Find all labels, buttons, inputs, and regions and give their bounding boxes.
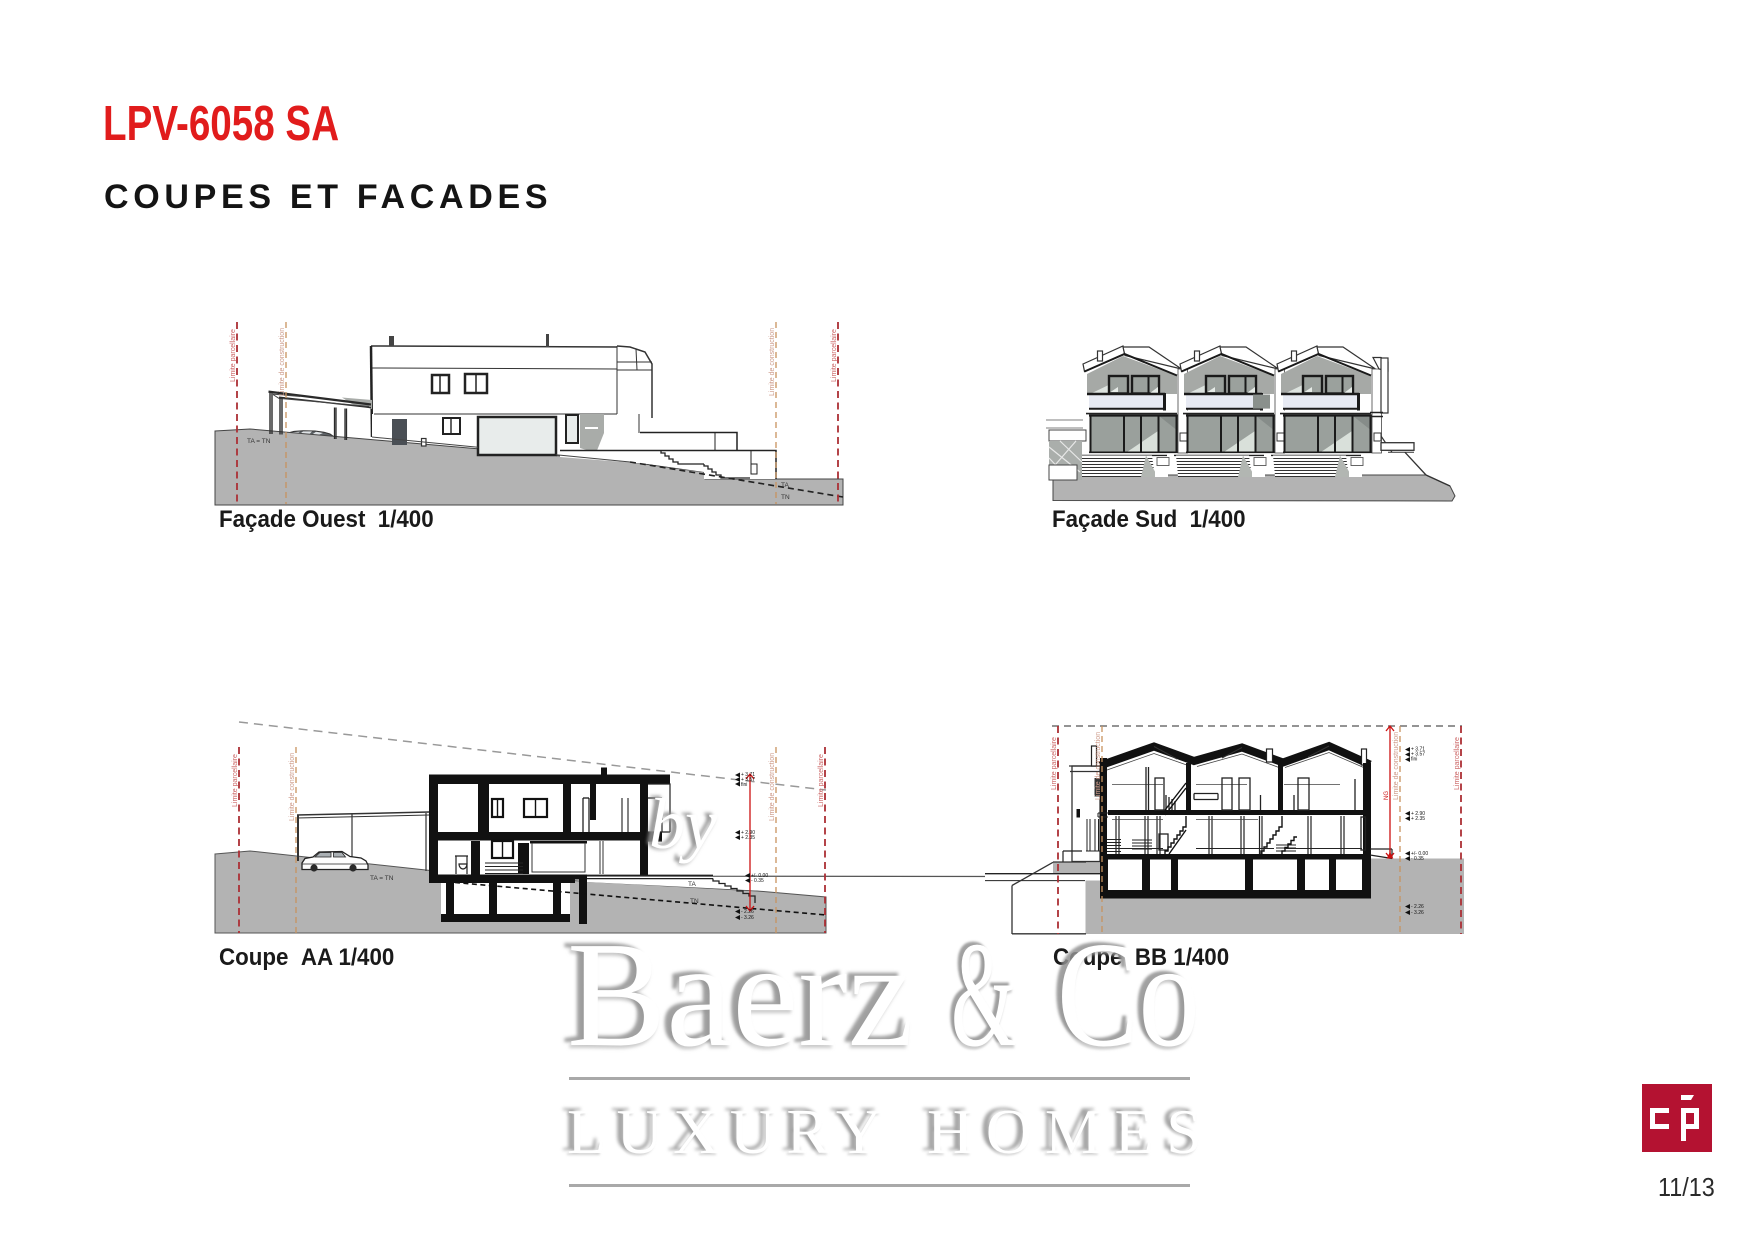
svg-text:- 0.35: - 0.35 [1411, 856, 1424, 862]
svg-text:Limite de construction: Limite de construction [1393, 732, 1400, 800]
svg-text:Limite parcellaire: Limite parcellaire [1454, 737, 1461, 790]
svg-text:TA = TN: TA = TN [370, 875, 394, 882]
svg-text:Limite de construction: Limite de construction [769, 328, 776, 396]
svg-text:Limite de construction: Limite de construction [1095, 732, 1102, 800]
svg-text:TA: TA [781, 482, 789, 489]
svg-text:fini: fini [741, 782, 747, 788]
svg-text:+ 2.35: + 2.35 [741, 835, 755, 841]
svg-text:- 3.26: - 3.26 [1411, 910, 1424, 916]
svg-text:TA = TN: TA = TN [247, 438, 271, 445]
svg-text:Limite de construction: Limite de construction [769, 753, 776, 821]
svg-text:Limite de construction: Limite de construction [289, 753, 296, 821]
svg-text:Limite parcellaire: Limite parcellaire [831, 329, 838, 382]
svg-text:TA: TA [688, 881, 696, 888]
svg-text:Limite de construction: Limite de construction [279, 328, 286, 396]
svg-text:- 0.35: - 0.35 [751, 878, 764, 884]
svg-text:TN: TN [781, 494, 790, 501]
svg-text:Limite parcellaire: Limite parcellaire [232, 754, 239, 807]
svg-text:+ 2.35: + 2.35 [1411, 816, 1425, 822]
svg-text:NG: NG [1384, 791, 1390, 800]
svg-text:Limite parcellaire: Limite parcellaire [230, 329, 237, 382]
svg-text:TN: TN [690, 898, 699, 905]
svg-text:Limite parcellaire: Limite parcellaire [1051, 737, 1058, 790]
svg-text:Limite parcellaire: Limite parcellaire [818, 754, 825, 807]
svg-text:fini: fini [1411, 757, 1417, 763]
